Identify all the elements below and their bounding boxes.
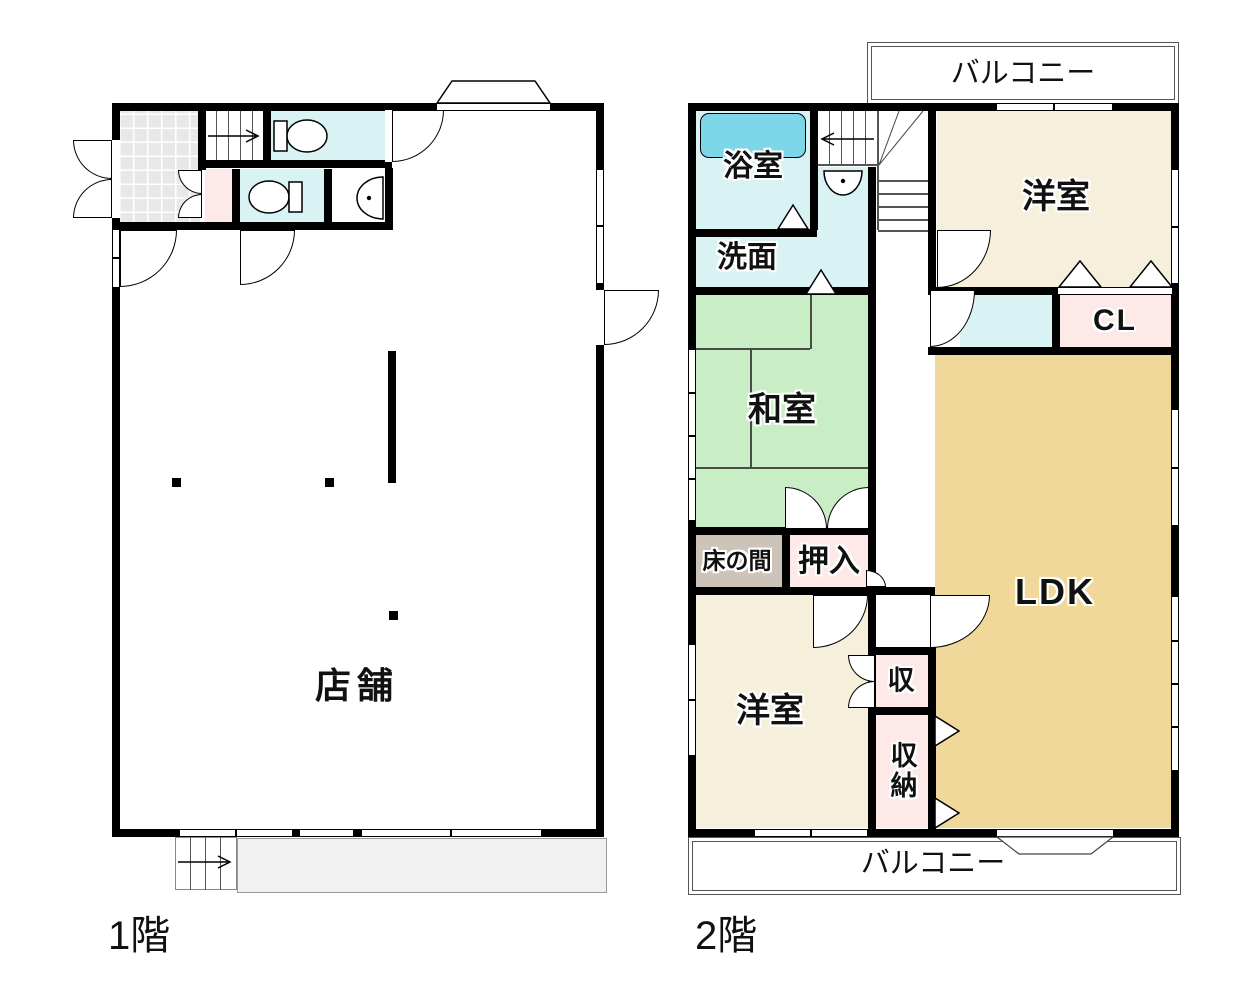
partition-wall [388,351,396,483]
door-swing-arc-icon [73,140,112,179]
tatami-line [695,467,868,469]
window-tick [1171,226,1179,228]
window-icon [300,829,353,837]
balcony-top-label: バルコニー [951,60,1095,89]
wall [810,110,818,230]
porch-terrace [237,838,607,893]
window-icon [437,103,550,111]
balcony-bottom-label: バルコニー [861,850,1005,879]
wall [928,110,936,290]
door-opening [596,290,604,345]
window-tick [450,829,452,837]
stair-line [878,219,928,221]
tatami-line [695,348,810,350]
stair-line [878,180,928,182]
room-label-japanese: 和室 [748,393,816,427]
stair-line [817,164,877,166]
folding-door-triangle-icon [804,268,838,296]
wall [232,169,240,227]
folding-door-triangle-icon [1128,259,1174,289]
wall [112,222,392,230]
floor-plan: 店舗 1階 [0,0,1237,1000]
wall [198,160,392,168]
wall [868,707,936,715]
window-tick [688,478,696,480]
door-swing-arc-icon [240,230,295,285]
room-label-bath: 浴室 [723,152,783,182]
folding-door-triangle-icon [1057,259,1103,289]
wall [928,347,1179,355]
wall [868,647,936,655]
toilet-icon [246,174,304,220]
stair-winder-lines [878,110,930,166]
door-opening [112,140,120,218]
folding-door-triangle-icon [934,796,961,830]
wall [688,287,876,295]
room-label-cl: CL [1093,306,1137,336]
room-label-ldk: LDK [1015,574,1095,610]
room-label-tokonoma: 床の間 [703,550,772,573]
stair-arrow-icon [206,128,262,144]
window-tick [596,225,604,227]
wall [1052,290,1060,347]
shoe-cabinet [205,169,232,227]
folding-door-triangle-icon [934,714,961,748]
window-tick [235,829,237,837]
entrance-canopy-icon [436,80,552,104]
room-label-storage: 収納 [888,741,915,801]
stair-arrow-icon [176,854,234,870]
sink-icon [350,174,386,222]
floor1-title: 1階 [108,916,170,956]
wall [324,169,332,227]
window-tick [1171,467,1179,469]
window-tick [1171,683,1179,685]
toilet-icon [272,113,330,159]
window-tick [1171,640,1179,642]
tatami-line [810,295,812,349]
room-label-western-upper: 洋室 [1022,180,1090,214]
wall [688,587,935,595]
sink-icon [820,167,866,201]
room-label-western-lower: 洋室 [736,694,804,728]
room-label-shop: 店舗 [315,668,399,704]
door-swing-arc-icon [604,290,659,345]
door-swing-arc-icon [73,179,112,218]
pillar-icon [325,478,334,487]
window-tick [688,699,696,701]
stair-arrow-icon [818,130,876,148]
room-label-oshiire: 押入 [798,546,860,577]
stair-line [878,206,928,208]
balcony-step-icon [996,836,1114,855]
door-swing-arc-icon [392,110,444,162]
pillar-icon [389,611,398,620]
wall [385,168,393,230]
stair-line [878,193,928,195]
room-label-washroom: 洗面 [717,243,777,273]
wall [263,110,271,162]
folding-door-triangle-icon [776,203,810,231]
pillar-icon [172,478,181,487]
room-label-storage-small: 収 [888,668,915,695]
wall [868,167,876,595]
window-tick [112,257,120,259]
window-tick [688,435,696,437]
floor2-title: 2階 [695,916,757,956]
door-swing-arc-icon [120,230,177,287]
window-tick [1171,726,1179,728]
window-tick [1053,103,1055,111]
wall [782,527,790,595]
window-tick [688,392,696,394]
stair-line [878,230,928,232]
window-tick [810,829,812,837]
door-swing-arc-icon [866,570,886,587]
